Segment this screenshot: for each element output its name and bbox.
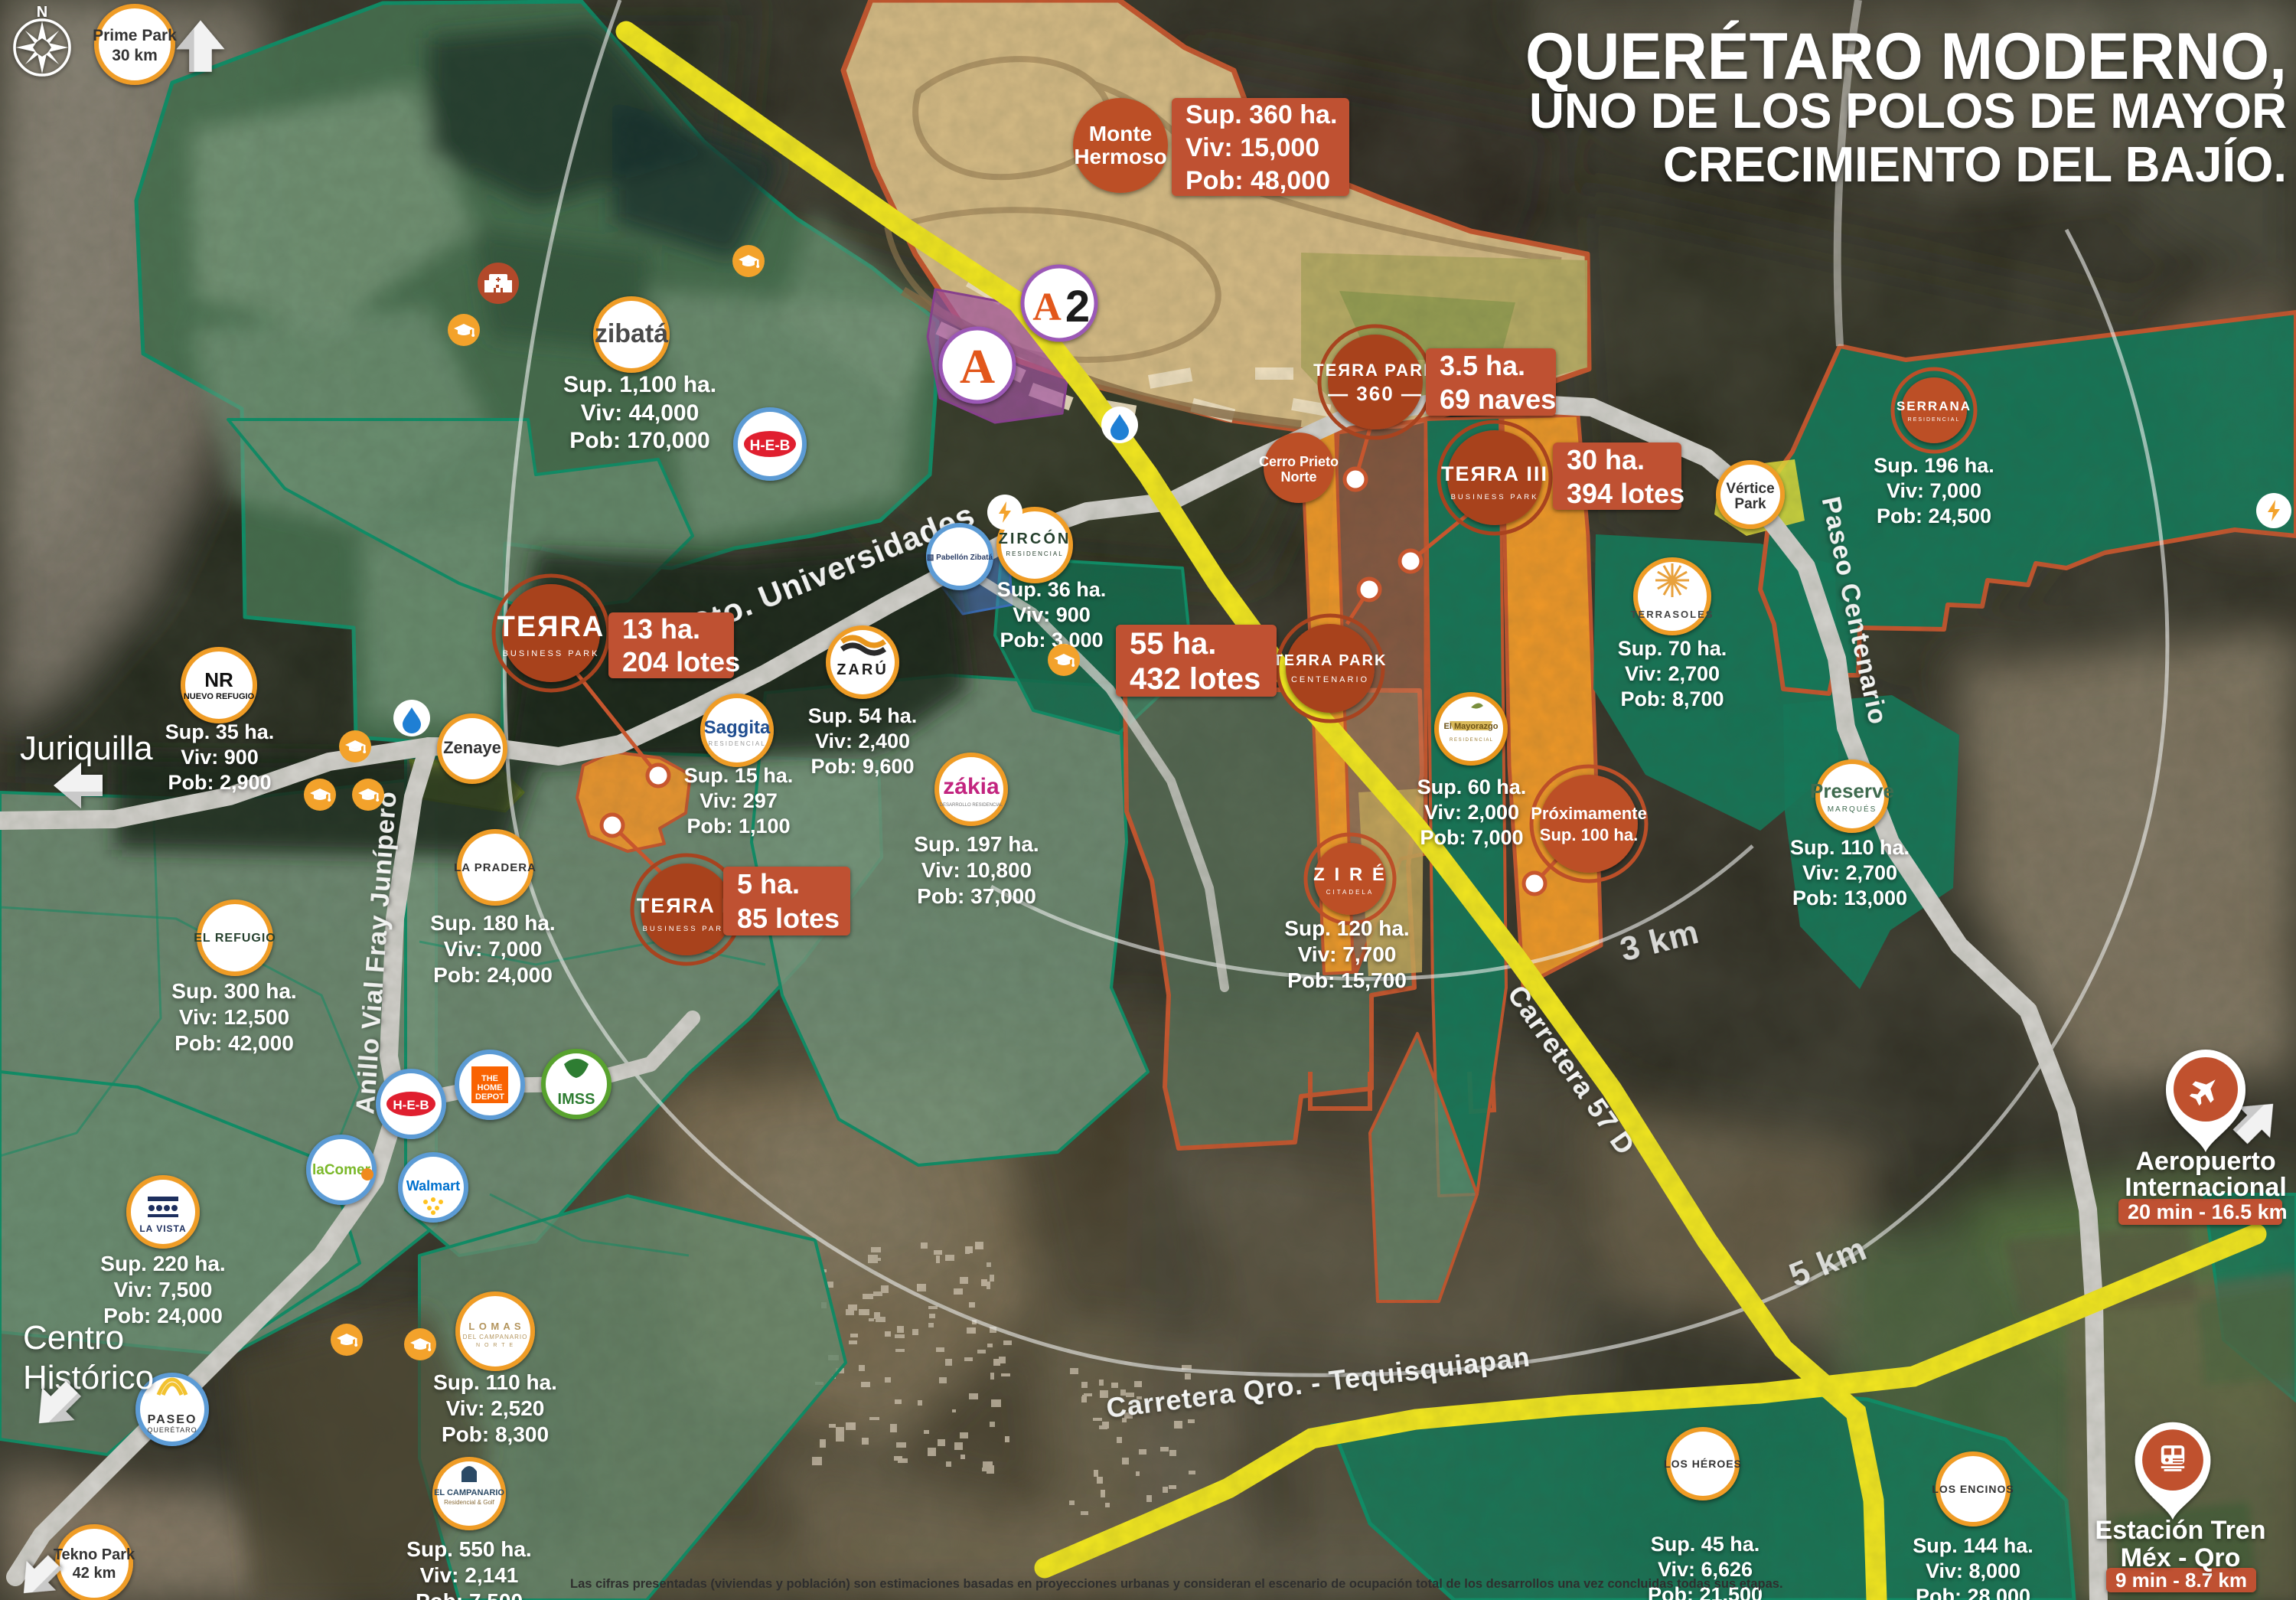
- svg-text:BUSINESS PARK: BUSINESS PARK: [503, 649, 600, 658]
- svg-text:Pob: 1,100: Pob: 1,100: [687, 815, 790, 838]
- svg-text:85 lotes: 85 lotes: [737, 903, 840, 934]
- svg-text:MARQUÉS: MARQUÉS: [1828, 804, 1877, 814]
- svg-text:Saggita: Saggita: [704, 717, 771, 738]
- svg-text:N O R T E: N O R T E: [476, 1343, 514, 1348]
- svg-text:Sup. 360 ha.: Sup. 360 ha.: [1186, 100, 1337, 129]
- svg-text:Pob: 42,000: Pob: 42,000: [174, 1031, 294, 1055]
- svg-text:zibatá: zibatá: [595, 319, 668, 348]
- svg-text:Pob: 13,000: Pob: 13,000: [1792, 887, 1907, 909]
- svg-text:Pob: 37,000: Pob: 37,000: [917, 884, 1036, 908]
- svg-text:QUERÉTARO: QUERÉTARO: [147, 1426, 197, 1434]
- svg-text:Viv: 2,700: Viv: 2,700: [1802, 861, 1897, 884]
- svg-text:THE: THE: [481, 1074, 498, 1083]
- svg-text:Sup. 100 ha.: Sup. 100 ha.: [1540, 825, 1638, 844]
- svg-text:H-E-B: H-E-B: [750, 438, 791, 454]
- svg-text:Sup. 144 ha.: Sup. 144 ha.: [1913, 1534, 2033, 1557]
- svg-text:Viv: 7,700: Viv: 7,700: [1298, 942, 1397, 966]
- svg-text:Pob: 2,900: Pob: 2,900: [168, 771, 271, 794]
- svg-text:Monte: Monte: [1089, 122, 1152, 145]
- svg-text:BUSINESS PARK: BUSINESS PARK: [643, 925, 731, 933]
- svg-text:Sup. 180 ha.: Sup. 180 ha.: [430, 911, 555, 935]
- svg-text:Walmart: Walmart: [406, 1178, 460, 1193]
- svg-text:Viv: 2,520: Viv: 2,520: [446, 1396, 545, 1420]
- svg-text:Pob: 8,700: Pob: 8,700: [1620, 687, 1724, 710]
- svg-text:Sup. 110 ha.: Sup. 110 ha.: [1790, 836, 1910, 859]
- svg-text:Viv: 44,000: Viv: 44,000: [581, 400, 700, 426]
- svg-text:L O M A S: L O M A S: [468, 1321, 521, 1332]
- svg-text:LA VISTA: LA VISTA: [139, 1223, 186, 1234]
- svg-text:Sup. 15 ha.: Sup. 15 ha.: [684, 764, 794, 787]
- svg-text:Sup. 197 ha.: Sup. 197 ha.: [914, 832, 1039, 856]
- svg-text:Zenaye: Zenaye: [443, 738, 501, 757]
- svg-text:Sup. 1,100 ha.: Sup. 1,100 ha.: [563, 372, 716, 397]
- svg-text:PASEO: PASEO: [148, 1413, 197, 1426]
- svg-text:— 360 —: — 360 —: [1328, 382, 1423, 405]
- svg-text:EL REFUGIO: EL REFUGIO: [194, 932, 276, 945]
- svg-text:5 ha.: 5 ha.: [737, 868, 800, 900]
- svg-text:ZARÚ: ZARÚ: [837, 660, 889, 678]
- svg-text:Viv: 7,000: Viv: 7,000: [444, 937, 543, 961]
- svg-text:RESIDENCIAL: RESIDENCIAL: [1908, 417, 1961, 423]
- svg-text:Pob: 170,000: Pob: 170,000: [569, 428, 709, 453]
- svg-text:Park: Park: [1734, 496, 1766, 512]
- svg-text:20 min - 16.5 km: 20 min - 16.5 km: [2128, 1200, 2288, 1223]
- svg-text:Viv: 15,000: Viv: 15,000: [1186, 133, 1319, 162]
- svg-text:69 naves: 69 naves: [1440, 384, 1556, 415]
- svg-text:BUSINESS PARK: BUSINESS PARK: [1451, 493, 1539, 501]
- svg-text:Las cifras presentadas (vivien: Las cifras presentadas (viviendas y pobl…: [570, 1577, 1783, 1591]
- svg-text:204 lotes: 204 lotes: [622, 646, 740, 678]
- svg-text:Pob: 24,500: Pob: 24,500: [1877, 504, 1991, 527]
- svg-text:55 ha.: 55 ha.: [1130, 627, 1216, 661]
- svg-text:Viv: 2,141: Viv: 2,141: [420, 1563, 519, 1587]
- svg-text:TEЯRA PARK: TEЯRA PARK: [1274, 652, 1388, 669]
- svg-text:Viv: 12,500: Viv: 12,500: [179, 1005, 289, 1029]
- svg-text:2: 2: [1065, 282, 1090, 331]
- svg-text:CITADELA: CITADELA: [1326, 889, 1375, 896]
- svg-text:Sup. 550 ha.: Sup. 550 ha.: [406, 1537, 531, 1561]
- svg-text:H-E-B: H-E-B: [393, 1098, 429, 1112]
- svg-text:Pob: 48,000: Pob: 48,000: [1186, 166, 1330, 195]
- svg-text:Viv: 7,000: Viv: 7,000: [1887, 479, 1981, 502]
- svg-text:Pob: 9,600: Pob: 9,600: [810, 755, 914, 778]
- svg-text:Viv: 2,700: Viv: 2,700: [1625, 662, 1720, 685]
- svg-text:Cerro Prieto: Cerro Prieto: [1259, 454, 1339, 469]
- svg-text:30 ha.: 30 ha.: [1567, 444, 1645, 475]
- svg-text:EL CAMPANARIO: EL CAMPANARIO: [434, 1488, 504, 1497]
- svg-text:30 km: 30 km: [112, 47, 158, 64]
- svg-text:▧ Pabellón Zibatá: ▧ Pabellón Zibatá: [927, 553, 993, 562]
- svg-text:SERRANA: SERRANA: [1896, 399, 1971, 413]
- svg-text:Viv: 7,500: Viv: 7,500: [114, 1278, 213, 1301]
- svg-text:UNO DE LOS POLOS DE MAYOR: UNO DE LOS POLOS DE MAYOR: [1529, 83, 2287, 139]
- svg-text:432 lotes: 432 lotes: [1130, 662, 1261, 696]
- svg-text:TEЯRA III: TEЯRA III: [1441, 462, 1548, 485]
- svg-text:Sup. 45 ha.: Sup. 45 ha.: [1651, 1533, 1760, 1556]
- svg-text:Sup. 54 ha.: Sup. 54 ha.: [808, 704, 918, 727]
- svg-text:A: A: [960, 339, 995, 393]
- svg-text:TEЯRA PARK: TEЯRA PARK: [1313, 361, 1437, 380]
- svg-text:LOS HÉROES: LOS HÉROES: [1664, 1458, 1742, 1470]
- svg-text:Viv: 2,000: Viv: 2,000: [1424, 801, 1519, 824]
- svg-text:Hermoso: Hermoso: [1074, 145, 1166, 168]
- svg-text:N: N: [37, 4, 47, 21]
- svg-text:Pob: 8,300: Pob: 8,300: [442, 1422, 549, 1446]
- svg-text:Pob: 24,000: Pob: 24,000: [433, 963, 553, 987]
- svg-text:RESIDENCIAL: RESIDENCIAL: [1006, 550, 1063, 557]
- svg-text:Viv: 900: Viv: 900: [1013, 603, 1091, 626]
- svg-text:Estación Tren: Estación Tren: [2095, 1516, 2266, 1545]
- svg-text:Viv: 2,400: Viv: 2,400: [815, 730, 910, 753]
- svg-text:DESARROLLO RESIDENCIAL: DESARROLLO RESIDENCIAL: [940, 803, 1003, 808]
- svg-text:TEЯRA: TEЯRA: [497, 611, 605, 643]
- svg-text:CRECIMIENTO DEL BAJÍO.: CRECIMIENTO DEL BAJÍO.: [1663, 136, 2287, 192]
- svg-text:Pob: 28,000: Pob: 28,000: [1916, 1585, 2030, 1600]
- svg-text:Tekno Park: Tekno Park: [54, 1546, 135, 1563]
- svg-text:NUEVO REFUGIO: NUEVO REFUGIO: [184, 692, 255, 701]
- svg-text:Pob: 7,500: Pob: 7,500: [416, 1589, 523, 1600]
- svg-text:Z I R É: Z I R É: [1313, 864, 1387, 885]
- svg-text:TERRASOLES: TERRASOLES: [1631, 609, 1714, 620]
- svg-text:Sup. 120 ha.: Sup. 120 ha.: [1284, 916, 1409, 940]
- svg-text:Viv: 8,000: Viv: 8,000: [1926, 1559, 2020, 1582]
- svg-text:HOME: HOME: [478, 1083, 503, 1092]
- svg-text:El Mayorazgo: El Mayorazgo: [1444, 722, 1499, 731]
- svg-text:3.5 ha.: 3.5 ha.: [1440, 350, 1525, 381]
- svg-text:Sup. 60 ha.: Sup. 60 ha.: [1417, 776, 1527, 798]
- svg-text:Viv: 10,800: Viv: 10,800: [921, 858, 1032, 882]
- svg-text:DEPOT: DEPOT: [475, 1092, 504, 1102]
- svg-text:RESIDENCIAL: RESIDENCIAL: [708, 740, 765, 747]
- svg-text:Juriquilla: Juriquilla: [20, 730, 153, 767]
- svg-text:Prime Park: Prime Park: [93, 27, 177, 44]
- svg-text:Próximamente: Próximamente: [1531, 804, 1647, 823]
- svg-text:Viv: 297: Viv: 297: [700, 789, 778, 812]
- svg-text:Sup. 36 ha.: Sup. 36 ha.: [997, 578, 1107, 601]
- svg-text:CENTENARIO: CENTENARIO: [1291, 675, 1369, 684]
- svg-text:Sup. 300 ha.: Sup. 300 ha.: [171, 979, 296, 1003]
- svg-text:R E S I D E N C I A L: R E S I D E N C I A L: [1450, 738, 1493, 743]
- svg-text:Sup. 35 ha.: Sup. 35 ha.: [165, 720, 275, 743]
- svg-text:A: A: [1032, 286, 1062, 329]
- svg-text:Pob: 7,000: Pob: 7,000: [1420, 826, 1523, 849]
- svg-text:zákia: zákia: [943, 774, 1000, 799]
- svg-text:Internacional: Internacional: [2125, 1173, 2287, 1202]
- svg-text:Méx - Qro: Méx - Qro: [2121, 1543, 2241, 1572]
- svg-text:Viv: 900: Viv: 900: [181, 746, 259, 769]
- svg-text:Sup. 196 ha.: Sup. 196 ha.: [1874, 454, 1994, 477]
- svg-text:Preserve: Preserve: [1810, 779, 1894, 802]
- svg-text:394 lotes: 394 lotes: [1567, 478, 1684, 509]
- svg-text:Sup. 110 ha.: Sup. 110 ha.: [433, 1370, 557, 1394]
- svg-text:NR: NR: [204, 668, 233, 691]
- svg-text:42 km: 42 km: [73, 1565, 116, 1582]
- svg-text:LA PRADERA: LA PRADERA: [454, 861, 536, 874]
- svg-text:TEЯRA II: TEЯRA II: [637, 894, 736, 917]
- svg-text:Pob: 15,700: Pob: 15,700: [1287, 968, 1407, 992]
- svg-text:Vértice: Vértice: [1726, 481, 1774, 497]
- svg-text:IMSS: IMSS: [558, 1091, 595, 1108]
- svg-text:ZIRCÓN: ZIRCÓN: [999, 529, 1071, 547]
- svg-text:Residencial & Golf: Residencial & Golf: [444, 1499, 495, 1506]
- svg-text:13 ha.: 13 ha.: [622, 613, 700, 645]
- svg-text:Pob: 3,000: Pob: 3,000: [1000, 629, 1103, 651]
- svg-text:LOS ENCINOS: LOS ENCINOS: [1932, 1483, 2014, 1495]
- svg-text:Norte: Norte: [1280, 469, 1316, 485]
- svg-text:DEL CAMPANARIO: DEL CAMPANARIO: [463, 1334, 528, 1340]
- svg-text:Sup. 70 ha.: Sup. 70 ha.: [1618, 637, 1727, 660]
- svg-text:Sup. 220 ha.: Sup. 220 ha.: [100, 1252, 225, 1275]
- svg-text:Centro: Centro: [23, 1319, 124, 1357]
